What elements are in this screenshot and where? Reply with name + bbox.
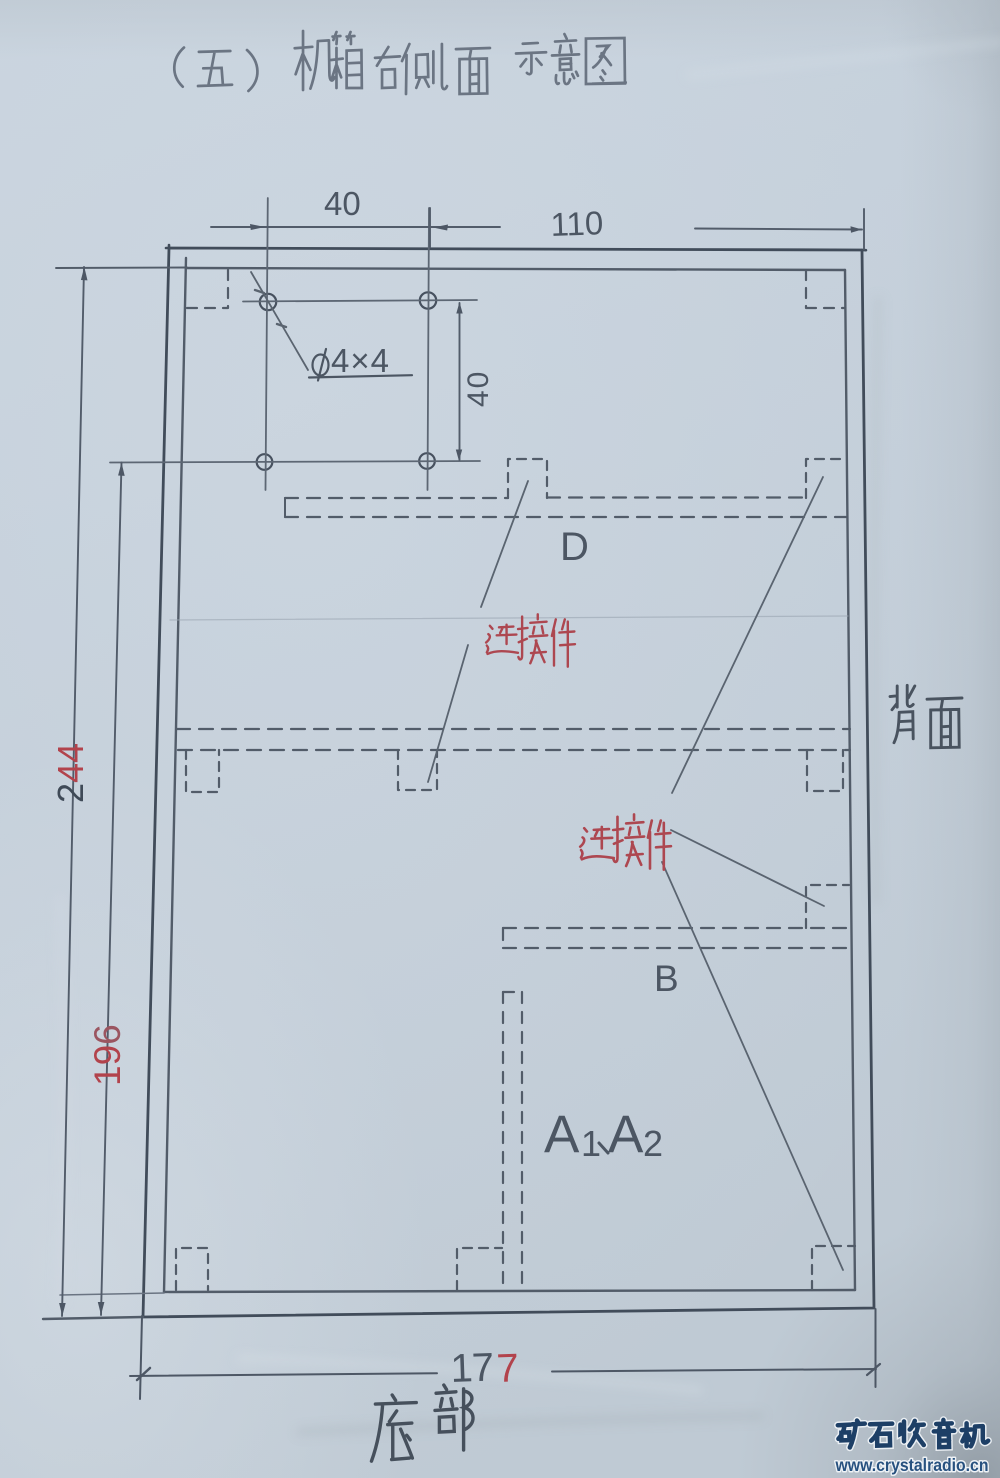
svg-text:D: D <box>560 525 589 569</box>
svg-text:17: 17 <box>450 1346 494 1391</box>
svg-text:40: 40 <box>324 185 361 222</box>
svg-text:B: B <box>654 958 679 999</box>
svg-text:196: 196 <box>87 1024 128 1086</box>
svg-text:A: A <box>544 1105 580 1164</box>
svg-text:4×4: 4×4 <box>331 342 390 379</box>
svg-text:244: 244 <box>50 743 91 803</box>
svg-text:110: 110 <box>550 204 604 243</box>
svg-text:7: 7 <box>496 1346 520 1391</box>
svg-text:40: 40 <box>462 370 495 407</box>
svg-text:www.crystalradio.cn: www.crystalradio.cn <box>835 1455 989 1475</box>
svg-text:2: 2 <box>643 1123 663 1164</box>
svg-text:A: A <box>608 1105 644 1164</box>
